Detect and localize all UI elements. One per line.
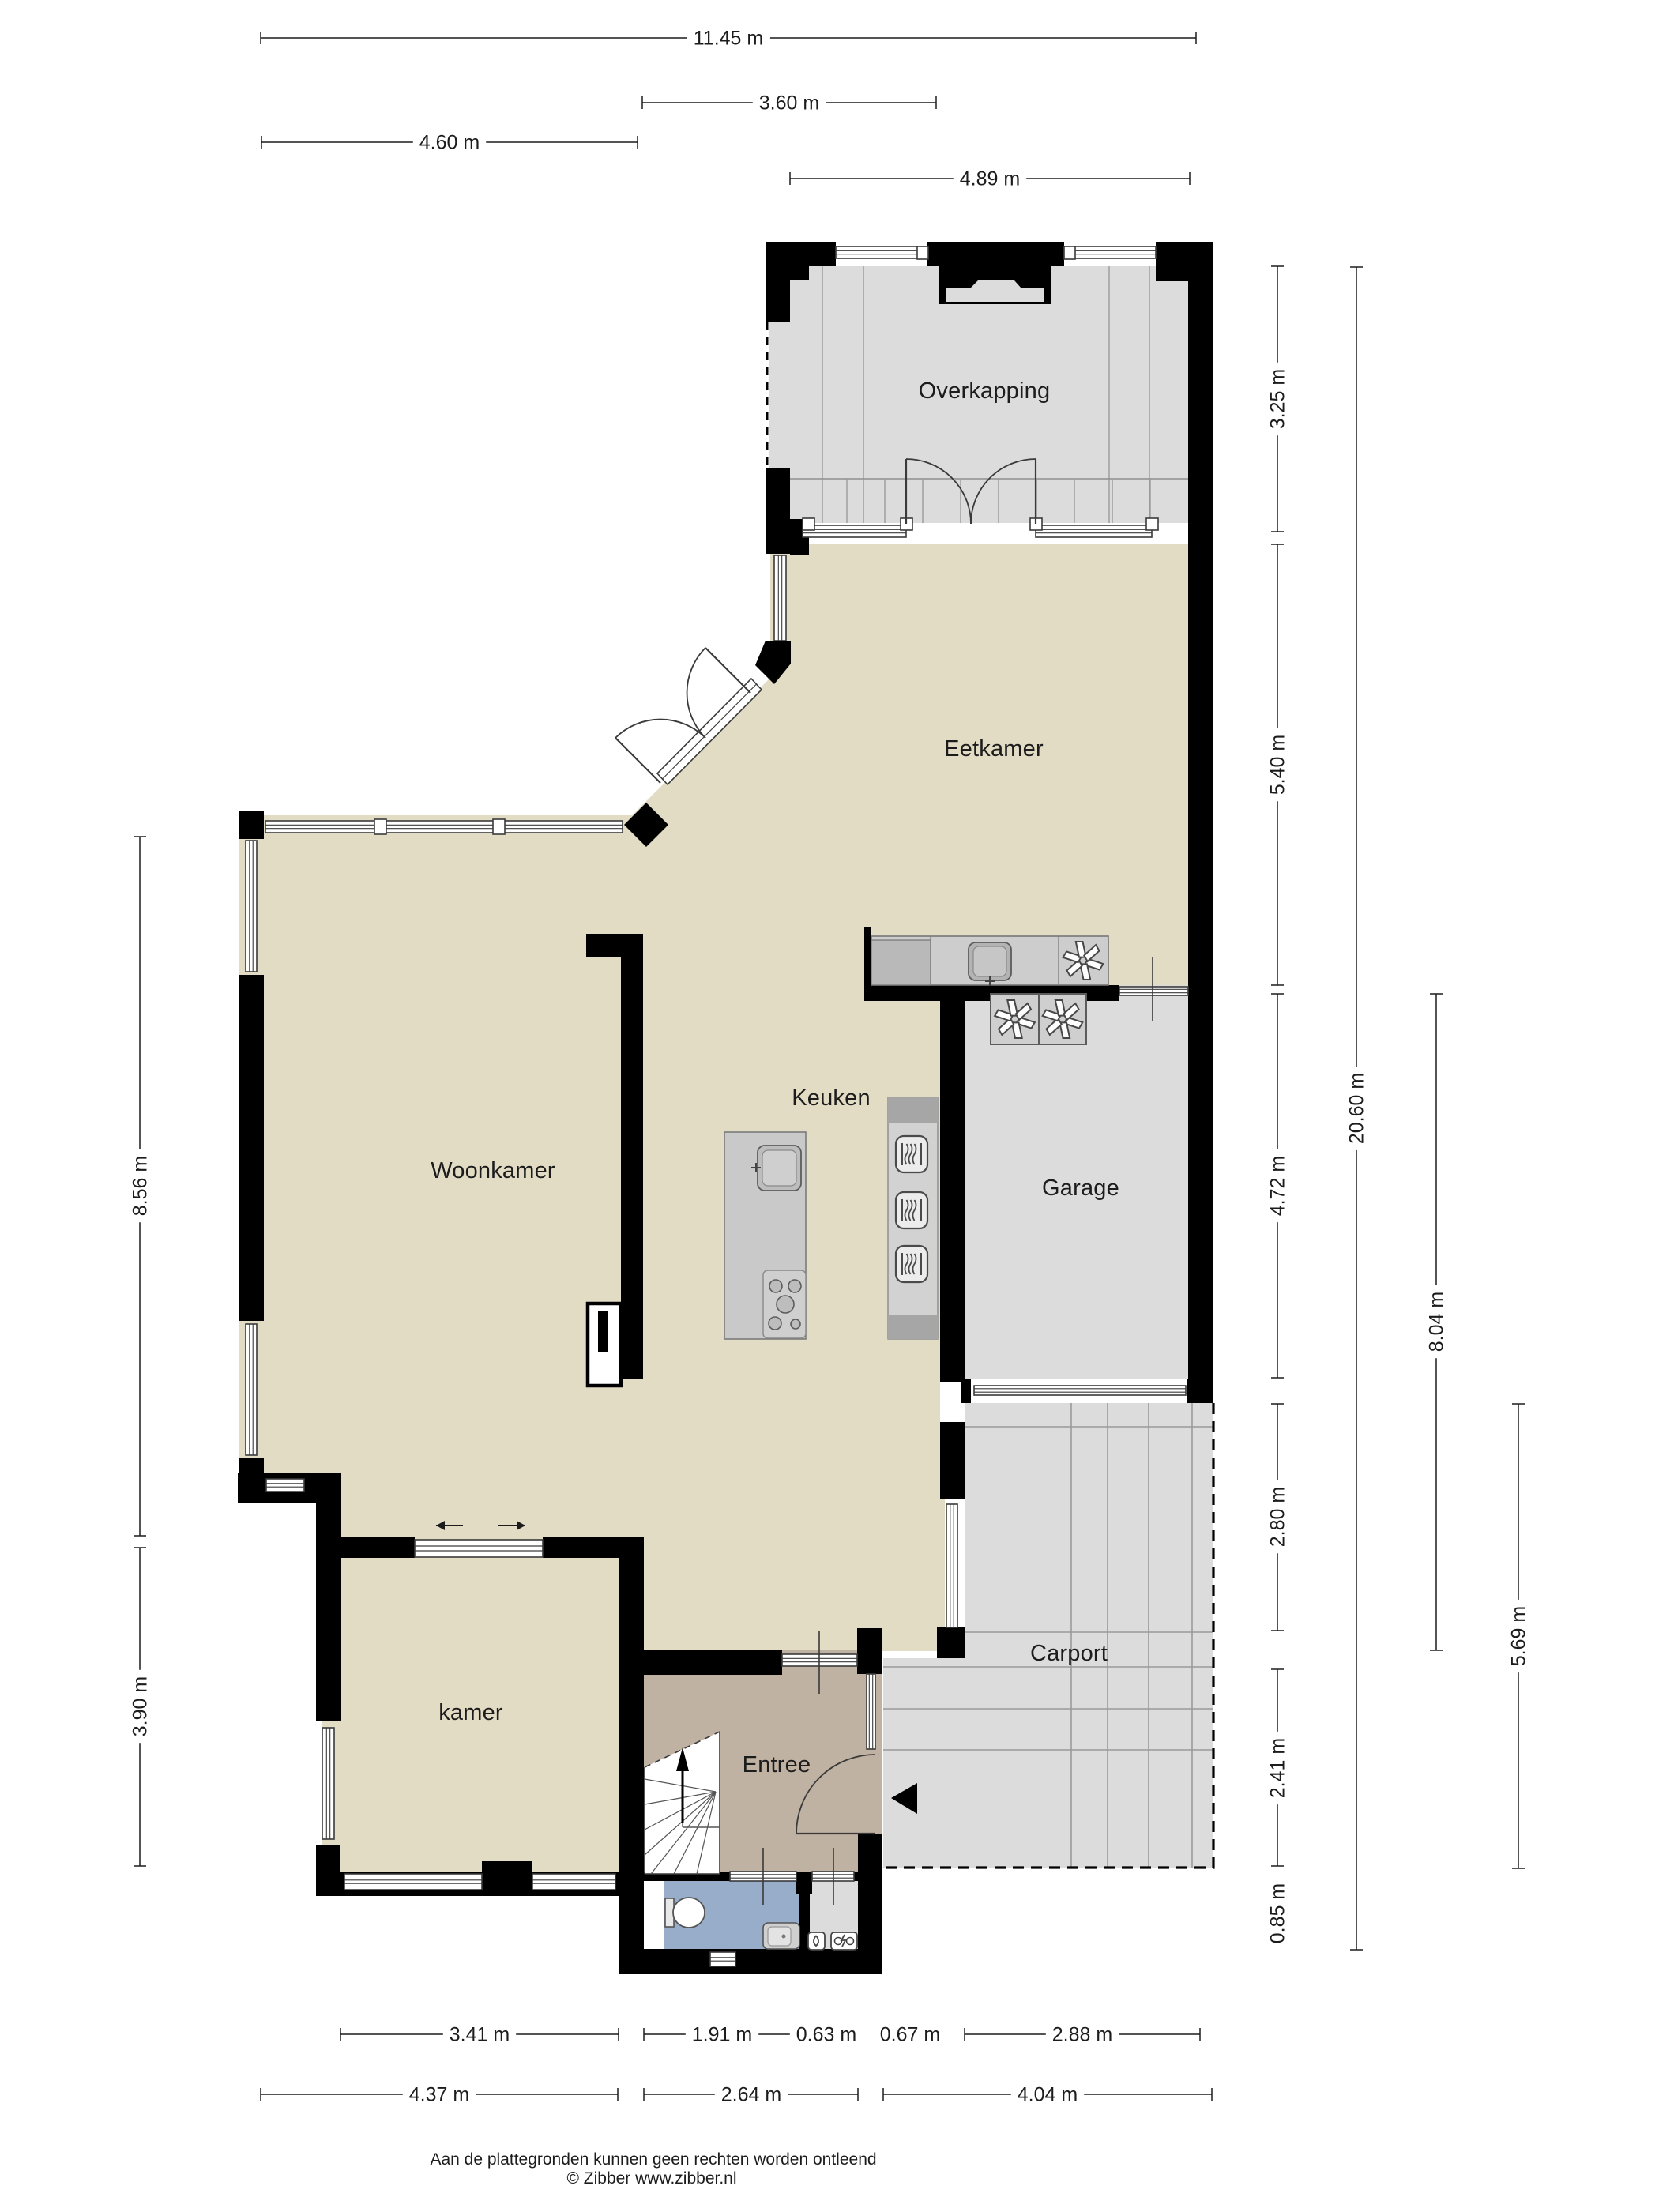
svg-text:11.45 m: 11.45 m	[694, 28, 763, 50]
svg-text:4.37 m: 4.37 m	[409, 2084, 469, 2106]
svg-text:20.60 m: 20.60 m	[1346, 1073, 1368, 1144]
svg-text:5.40 m: 5.40 m	[1267, 735, 1289, 795]
svg-text:0.67 m: 0.67 m	[880, 2024, 940, 2046]
svg-text:Entree: Entree	[743, 1752, 811, 1777]
svg-text:4.72 m: 4.72 m	[1267, 1156, 1289, 1216]
svg-text:2.64 m: 2.64 m	[721, 2084, 781, 2106]
svg-text:3.25 m: 3.25 m	[1267, 369, 1289, 429]
svg-text:Overkapping: Overkapping	[919, 378, 1051, 404]
svg-text:Aan de plattegronden kunnen ge: Aan de plattegronden kunnen geen rechten…	[430, 2150, 876, 2169]
svg-text:5.69 m: 5.69 m	[1508, 1606, 1530, 1666]
svg-text:3.90 m: 3.90 m	[130, 1676, 152, 1736]
svg-text:2.88 m: 2.88 m	[1052, 2024, 1112, 2046]
svg-text:Carport: Carport	[1030, 1641, 1108, 1666]
svg-text:kamer: kamer	[438, 1700, 503, 1725]
svg-text:4.89 m: 4.89 m	[960, 168, 1020, 190]
svg-text:8.56 m: 8.56 m	[130, 1156, 152, 1216]
svg-text:3.41 m: 3.41 m	[450, 2024, 510, 2046]
svg-text:3.60 m: 3.60 m	[759, 92, 819, 115]
svg-text:Eetkamer: Eetkamer	[944, 736, 1044, 762]
svg-text:Woonkamer: Woonkamer	[431, 1158, 555, 1183]
svg-text:8.04 m: 8.04 m	[1426, 1292, 1448, 1352]
svg-text:2.41 m: 2.41 m	[1267, 1738, 1289, 1798]
svg-text:Garage: Garage	[1042, 1176, 1119, 1201]
svg-text:Keuken: Keuken	[792, 1085, 871, 1111]
svg-text:0.85 m: 0.85 m	[1267, 1883, 1289, 1943]
svg-text:4.04 m: 4.04 m	[1018, 2084, 1078, 2106]
svg-text:0.63 m: 0.63 m	[796, 2024, 856, 2046]
svg-text:4.60 m: 4.60 m	[419, 132, 480, 154]
svg-text:© Zibber www.zibber.nl: © Zibber www.zibber.nl	[566, 2169, 736, 2188]
svg-text:1.91 m: 1.91 m	[692, 2024, 752, 2046]
svg-text:2.80 m: 2.80 m	[1267, 1487, 1289, 1547]
